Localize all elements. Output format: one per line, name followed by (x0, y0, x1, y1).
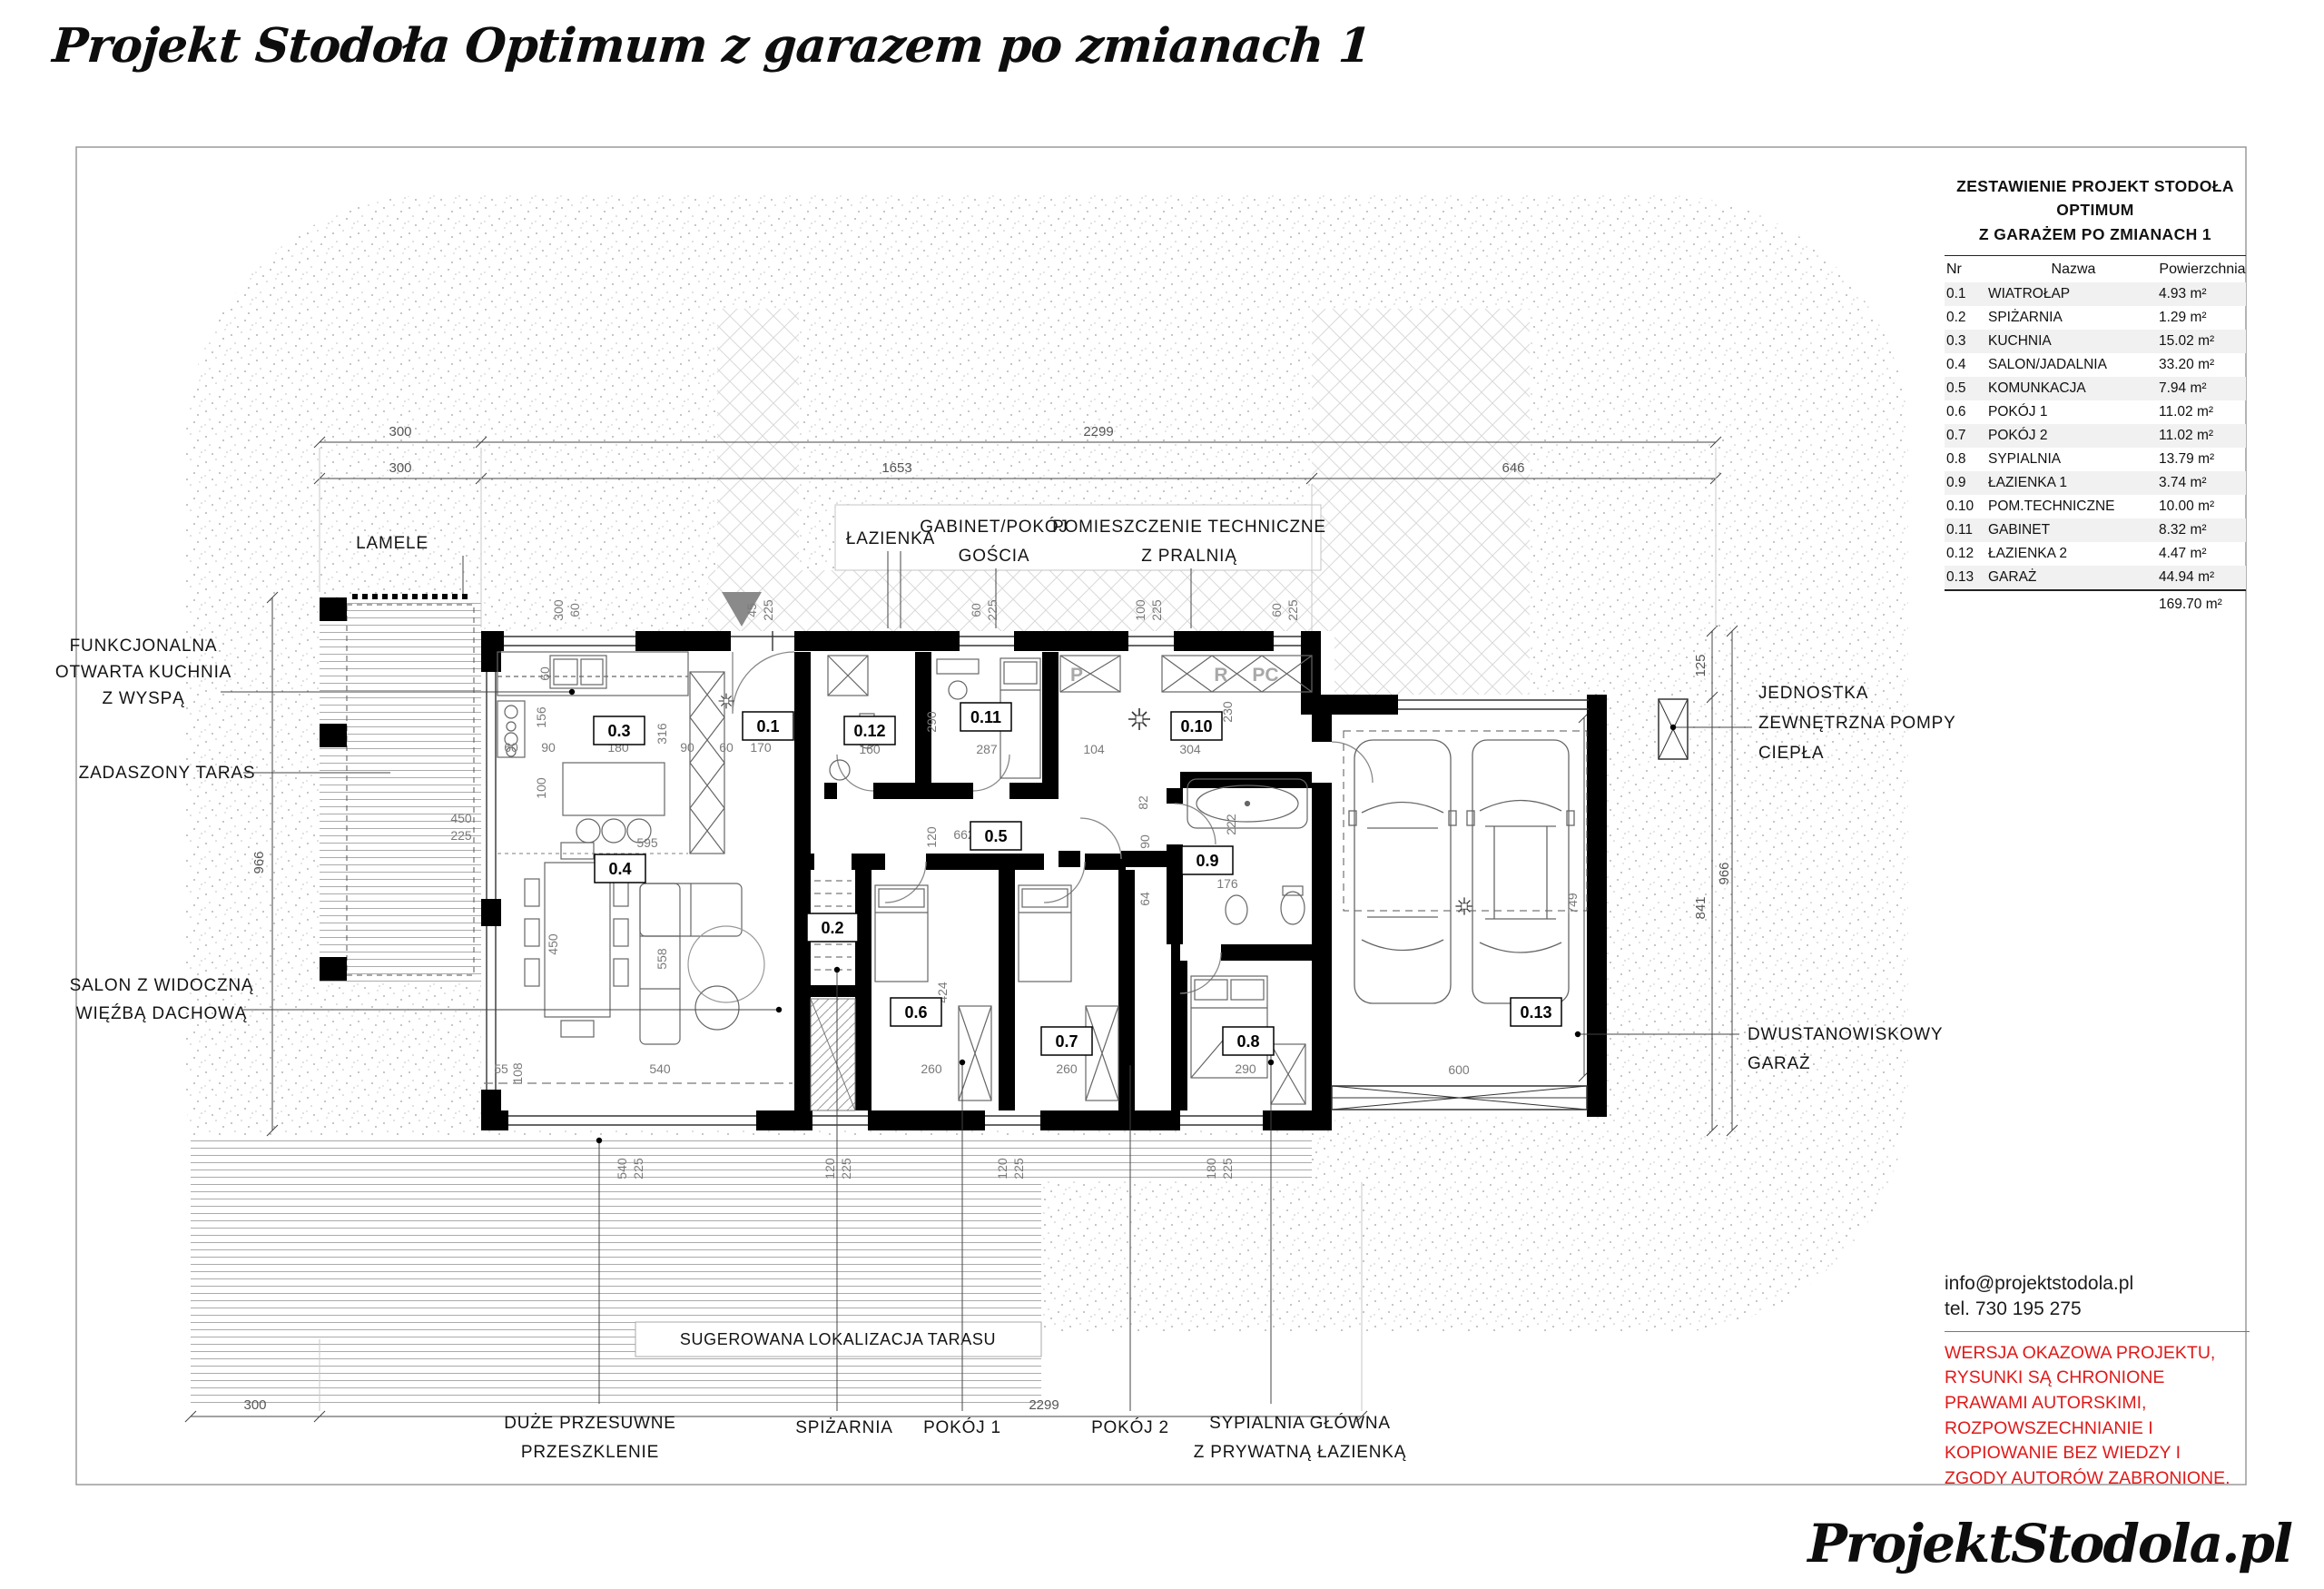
covered-terrace (320, 594, 481, 982)
schedule-header: Nr Nazwa Powierzchnia (1945, 256, 2246, 282)
callout-text: Z WYSPĄ (102, 689, 184, 708)
room-code: 0.2 (807, 913, 858, 942)
dim-label: 558 (655, 948, 669, 970)
room-code: 0.13 (1511, 998, 1561, 1026)
dim-label: 225 (839, 1158, 853, 1179)
dim-label: 540 (615, 1158, 629, 1179)
dim-label: 180 (1204, 1158, 1218, 1179)
dim-label: 100 (534, 777, 548, 799)
callout-text: POKÓJ 2 (1091, 1417, 1169, 1437)
copyright-warning: WERSJA OKAZOWA PROJEKTU, RYSUNKI SĄ CHRO… (1945, 1341, 2250, 1492)
appliance-letter: PC (1252, 665, 1278, 686)
schedule-title-line1: ZESTAWIENIE PROJEKT STODOŁA OPTIMUM (1945, 174, 2246, 222)
dim-label: 225 (761, 599, 775, 621)
schedule-row: 0.5KOMUNKACJA7.94 m² (1945, 377, 2246, 400)
callout-text: POMIESZCZENIE TECHNICZNE (1052, 518, 1326, 537)
dim-label: 225 (1011, 1158, 1026, 1179)
dim-label: 1653 (881, 460, 911, 476)
leader-dot (1670, 725, 1676, 730)
schedule-row: 0.7POKÓJ 211.02 m² (1945, 424, 2246, 448)
room-code: 0.5 (970, 822, 1021, 850)
dim-label: 90 (541, 740, 556, 755)
column-name: Nazwa (1988, 262, 2159, 278)
svg-text:0.12: 0.12 (853, 722, 885, 740)
dim-label: 2299 (1029, 1397, 1059, 1413)
callout-text: Z PRYWATNĄ ŁAZIENKĄ (1194, 1443, 1406, 1462)
svg-text:0.1: 0.1 (756, 717, 779, 735)
dim-label: 841 (1693, 896, 1709, 919)
svg-text:0.6: 0.6 (904, 1003, 927, 1021)
dim-label: 966 (1717, 862, 1732, 884)
room-code: 0.12 (844, 716, 895, 745)
garage-door (1332, 1086, 1587, 1110)
brand-logo: ProjektStodola.pl (1807, 1513, 2291, 1574)
svg-text:0.7: 0.7 (1055, 1032, 1078, 1051)
dim-label: 225 (1149, 599, 1164, 621)
room-code: 0.11 (960, 703, 1011, 731)
appliance-letter: P (1070, 665, 1083, 686)
callout-text: ZEWNĘTRZNA POMPY (1758, 714, 1956, 733)
suggested-terrace-label: SUGEROWANA LOKALIZACJA TARASU (680, 1330, 996, 1348)
leader-dot (1575, 1031, 1581, 1037)
dim-label: 82 (1136, 795, 1150, 810)
dim-label: 60 (537, 666, 552, 681)
callout-text: FUNKCJONALNA (70, 637, 218, 656)
dim-label: 176 (1216, 876, 1238, 891)
contact-block: info@projektstodola.pl tel. 730 195 275 … (1945, 1271, 2250, 1492)
room-code: 0.10 (1171, 712, 1222, 740)
room-schedule: ZESTAWIENIE PROJEKT STODOŁA OPTIMUM Z GA… (1945, 174, 2246, 613)
dim-label: 2299 (1083, 424, 1113, 439)
schedule-row: 0.8SYPIALNIA13.79 m² (1945, 448, 2246, 471)
schedule-row: 0.10POM.TECHNICZNE10.00 m² (1945, 495, 2246, 518)
dim-label: 600 (1448, 1062, 1470, 1077)
dim-label: 540 (649, 1061, 671, 1076)
svg-text:0.4: 0.4 (608, 860, 631, 878)
dim-label: 450 (546, 933, 560, 955)
total-area: 169.70 m² (2159, 597, 2246, 613)
schedule-row: 0.9ŁAZIENKA 13.74 m² (1945, 471, 2246, 495)
svg-text:0.3: 0.3 (607, 722, 630, 740)
dim-label: 64 (1137, 892, 1152, 906)
callout-text: SPIŻARNIA (795, 1418, 893, 1437)
callout-text: DUŻE PRZESUWNE (504, 1414, 676, 1433)
leader-dot (596, 1138, 602, 1143)
dim-label: 90 (1137, 834, 1152, 849)
schedule-row: 0.4SALON/JADALNIA33.20 m² (1945, 353, 2246, 377)
schedule-row: 0.1WIATROŁAP4.93 m² (1945, 282, 2246, 306)
callout-text: Z PRALNIĄ (1141, 547, 1236, 566)
callout-text: JEDNOSTKA (1758, 684, 1868, 703)
room-code: 0.3 (594, 716, 645, 745)
dim-label: 45 (744, 603, 759, 617)
room-code: 0.9 (1182, 846, 1233, 874)
leader-dot (1128, 1060, 1133, 1065)
column-nr: Nr (1945, 262, 1988, 278)
callout-text: SALON Z WIDOCZNĄ (70, 976, 254, 995)
dim-label: 120 (924, 826, 939, 848)
schedule-row: 0.11GABINET8.32 m² (1945, 518, 2246, 542)
svg-text:0.11: 0.11 (970, 708, 1001, 726)
dim-label: 60 (504, 740, 518, 755)
callout-text: ZADASZONY TARAS (79, 764, 256, 783)
schedule-row: 0.6POKÓJ 111.02 m² (1945, 400, 2246, 424)
dim-label: 225 (631, 1158, 645, 1179)
leader-dot (776, 1007, 782, 1012)
dim-label: 100 (1133, 599, 1147, 621)
dim-label: 260 (1056, 1061, 1078, 1076)
schedule-title-line2: Z GARAŻEM PO ZMIANACH 1 (1945, 222, 2246, 246)
schedule-row: 0.2SPIŻARNIA1.29 m² (1945, 306, 2246, 330)
schedule-row: 0.12ŁAZIENKA 24.47 m² (1945, 542, 2246, 566)
dim-label: 108 (510, 1062, 525, 1084)
dim-label: 156 (534, 706, 548, 728)
schedule-total-row: 169.70 m² (1945, 589, 2246, 613)
dim-label: 749 (1565, 893, 1580, 914)
callout-text: CIEPŁA (1758, 744, 1824, 763)
dim-label: 300 (389, 460, 411, 476)
room-code: 0.1 (743, 712, 793, 740)
room-code: 0.7 (1041, 1027, 1092, 1055)
callout-text: SYPIALNIA GŁÓWNA (1209, 1413, 1391, 1433)
dim-label: 225 (1220, 1158, 1235, 1179)
callout-text: PRZESZKLENIE (521, 1443, 659, 1462)
dim-label: 595 (636, 835, 658, 850)
dim-label: 60 (969, 603, 983, 617)
svg-text:0.10: 0.10 (1180, 717, 1212, 735)
dim-label: 125 (1693, 654, 1709, 676)
appliance-letter: R (1214, 665, 1227, 686)
callout-text: WIĘŹBĄ DACHOWĄ (76, 1004, 248, 1023)
dim-label: 120 (995, 1158, 1009, 1179)
column-area: Powierzchnia (2159, 262, 2246, 278)
leader-dot (834, 967, 840, 972)
svg-text:0.9: 0.9 (1196, 852, 1218, 870)
room-code: 0.4 (595, 854, 645, 883)
callout-text: LAMELE (356, 534, 428, 553)
dim-label: 222 (1224, 814, 1238, 835)
svg-text:0.5: 0.5 (984, 827, 1007, 845)
callout-text: GABINET/POKÓJ (920, 517, 1068, 537)
callout-text: GARAŻ (1748, 1054, 1810, 1073)
callout-text: OTWARTA KUCHNIA (55, 663, 231, 682)
dim-label: 55 (494, 1061, 508, 1076)
dim-label: 60 (719, 740, 734, 755)
dim-label: 225 (1285, 599, 1300, 621)
svg-text:0.8: 0.8 (1236, 1032, 1259, 1051)
dim-label: 225 (450, 828, 472, 843)
dim-label: 646 (1502, 460, 1524, 476)
dim-label: 316 (655, 723, 669, 745)
dim-label: 260 (921, 1061, 942, 1076)
dim-label: 300 (551, 599, 566, 621)
callout-text: GOŚCIA (959, 546, 1030, 566)
dim-label: 60 (567, 603, 582, 617)
room-code: 0.8 (1223, 1027, 1274, 1055)
sheet-title: Projekt Stodoła Optimum z garazem po zmi… (51, 18, 1373, 74)
leader-dot (569, 689, 575, 695)
room-code: 0.6 (891, 998, 941, 1026)
dim-label: 120 (822, 1158, 837, 1179)
callout-text: DWUSTANOWISKOWY (1748, 1025, 1943, 1044)
dim-label: 290 (924, 711, 939, 733)
schedule-row: 0.3KUCHNIA15.02 m² (1945, 330, 2246, 353)
dim-label: 966 (251, 851, 267, 873)
dim-label: 90 (680, 740, 694, 755)
dim-label: 170 (750, 740, 772, 755)
dim-label: 304 (1179, 742, 1201, 756)
leader-dot (960, 1060, 965, 1065)
dim-label: 104 (1083, 742, 1105, 756)
dim-label: 300 (243, 1397, 266, 1413)
dim-label: 290 (1235, 1061, 1256, 1076)
contact-phone: tel. 730 195 275 (1945, 1297, 2250, 1322)
dim-label: 60 (1269, 603, 1284, 617)
schedule-row: 0.13GARAŻ44.94 m² (1945, 566, 2246, 589)
dim-label: 300 (389, 424, 411, 439)
svg-text:0.13: 0.13 (1520, 1003, 1551, 1021)
svg-text:0.2: 0.2 (821, 919, 843, 937)
dim-label: 287 (976, 742, 998, 756)
contact-email: info@projektstodola.pl (1945, 1271, 2250, 1297)
leader-dot (1268, 1060, 1274, 1065)
dim-label: 450 (450, 811, 472, 825)
dim-label: 225 (985, 599, 1000, 621)
callout-text: POKÓJ 1 (923, 1417, 1001, 1437)
